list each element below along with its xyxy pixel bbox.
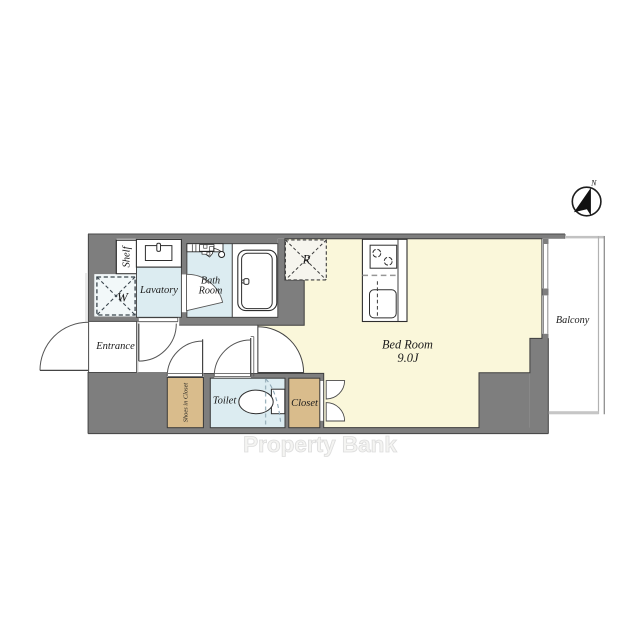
svg-text:Bed Room: Bed Room (382, 337, 433, 351)
svg-text:W: W (117, 290, 129, 305)
svg-text:9.0J: 9.0J (397, 351, 420, 365)
svg-text:Shoes in Closet: Shoes in Closet (183, 383, 190, 423)
svg-text:Lavatory: Lavatory (139, 285, 178, 296)
svg-text:Room: Room (198, 285, 223, 296)
svg-text:Closet: Closet (291, 398, 319, 409)
svg-text:Shelf: Shelf (122, 244, 133, 267)
svg-text:R: R (302, 253, 311, 267)
svg-text:Balcony: Balcony (556, 315, 590, 326)
svg-text:Toilet: Toilet (213, 396, 238, 407)
svg-text:Entrance: Entrance (95, 341, 135, 352)
svg-text:Property Bank: Property Bank (243, 432, 397, 457)
svg-text:N: N (590, 179, 597, 188)
